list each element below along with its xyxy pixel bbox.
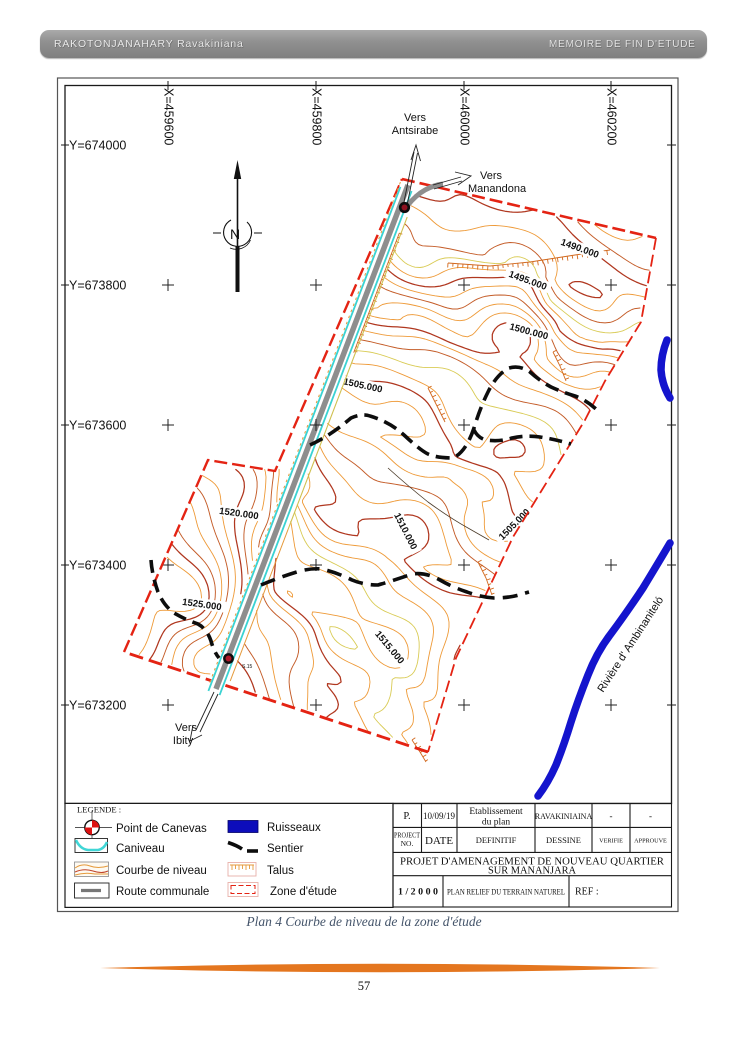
svg-text:Plan 4 Courbe de niveau de la: Plan 4 Courbe de niveau de la zone d'étu… [245, 914, 481, 929]
svg-text:VersAntsirabe: VersAntsirabe [392, 112, 438, 137]
svg-text:DESSINE: DESSINE [546, 835, 581, 845]
svg-text:P.: P. [403, 811, 410, 822]
svg-text:VersManandona: VersManandona [468, 170, 527, 195]
svg-text:Y=673400: Y=673400 [69, 559, 126, 573]
svg-text:Y=673200: Y=673200 [69, 699, 126, 713]
svg-text:1520.000: 1520.000 [218, 506, 259, 522]
svg-text:1510.000: 1510.000 [391, 511, 419, 551]
svg-text:X=459600: X=459600 [162, 88, 176, 145]
svg-text:PLAN RELIEF DU TERRAIN NATUREL: PLAN RELIEF DU TERRAIN NATUREL [447, 887, 565, 897]
svg-text:Caniveau: Caniveau [116, 843, 165, 855]
svg-text:1495.000: 1495.000 [507, 269, 548, 293]
svg-text:LEGENDE :: LEGENDE : [77, 805, 121, 815]
svg-text:Talus: Talus [267, 865, 294, 877]
svg-text:1500.000: 1500.000 [508, 322, 549, 343]
svg-text:APPROUVE: APPROUVE [634, 838, 667, 845]
svg-text:S.15: S.15 [242, 664, 253, 670]
svg-text:Sentier: Sentier [267, 843, 304, 855]
svg-text:Etablissement: Etablissement [469, 807, 523, 817]
svg-text:Y=673800: Y=673800 [69, 279, 126, 293]
svg-text:Zone d'étude: Zone d'étude [270, 886, 337, 898]
svg-text:DEFINITIF: DEFINITIF [476, 835, 517, 845]
svg-text:Courbe de niveau: Courbe de niveau [116, 865, 207, 877]
svg-text:X=460200: X=460200 [605, 88, 619, 145]
svg-text:du plan: du plan [482, 818, 510, 828]
svg-text:N: N [230, 226, 240, 242]
svg-text:Ruisseaux: Ruisseaux [267, 822, 321, 834]
svg-text:VERIFIE: VERIFIE [599, 838, 623, 845]
svg-text:Route communale: Route communale [116, 886, 209, 898]
svg-text:VersIbity: VersIbity [173, 722, 198, 747]
svg-text:Y=673600: Y=673600 [69, 419, 126, 433]
svg-text:57: 57 [358, 979, 371, 993]
svg-text:-: - [649, 811, 652, 821]
svg-text:-: - [610, 811, 613, 821]
svg-text:X=459800: X=459800 [310, 88, 324, 145]
svg-text:NO.: NO. [401, 839, 414, 848]
svg-text:X=460000: X=460000 [458, 88, 472, 145]
svg-text:REF :: REF : [575, 887, 599, 898]
svg-text:Point de Canevas: Point de Canevas [116, 823, 207, 835]
svg-text:Y=674000: Y=674000 [69, 139, 126, 153]
svg-text:SUR MANANJARA: SUR MANANJARA [488, 866, 577, 877]
svg-text:RAVAKINIAINA: RAVAKINIAINA [535, 812, 593, 821]
svg-text:1 / 2 0 0 0: 1 / 2 0 0 0 [398, 887, 438, 898]
svg-text:DATE: DATE [425, 835, 453, 847]
svg-text:10/09/19: 10/09/19 [423, 811, 456, 821]
